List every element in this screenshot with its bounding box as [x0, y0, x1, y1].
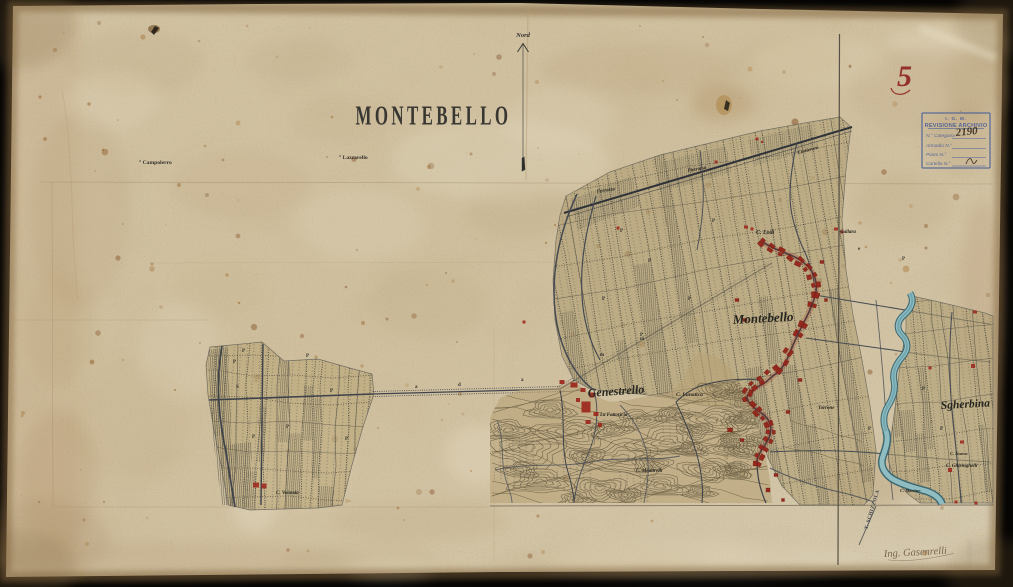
- svg-text:° Campolerro: ° Campolerro: [139, 159, 172, 166]
- svg-text:MONTEBELLO: MONTEBELLO: [356, 100, 512, 130]
- svg-text:C. Lunatica: C. Lunatica: [676, 392, 703, 398]
- svg-text:P: P: [602, 297, 605, 302]
- svg-text:P: P: [252, 435, 255, 440]
- svg-text:I. G. M.: I. G. M.: [945, 116, 966, 121]
- svg-text:Piano N.°: Piano N.°: [926, 152, 946, 158]
- svg-text:Armadio N.°: Armadio N.°: [925, 143, 952, 149]
- svg-text:C. Nuova: C. Nuova: [950, 451, 968, 456]
- svg-text:d: d: [458, 383, 461, 388]
- svg-text:C. Lodi: C. Lodi: [756, 230, 775, 236]
- svg-text:La Fattoricia: La Fattoricia: [599, 413, 628, 418]
- svg-text:C. Ghiringhelli: C. Ghiringhelli: [946, 464, 978, 469]
- svg-text:P: P: [620, 229, 623, 234]
- svg-text:Nord: Nord: [515, 32, 530, 39]
- svg-text:P: P: [242, 349, 245, 354]
- svg-text:P: P: [345, 437, 348, 442]
- svg-text:P: P: [233, 360, 236, 365]
- svg-text:P: P: [940, 427, 943, 432]
- svg-text:P: P: [868, 427, 871, 432]
- svg-text:Torrone: Torrone: [818, 406, 835, 411]
- svg-text:P: P: [648, 259, 651, 264]
- svg-text:N.° Categoria: N.° Categoria: [926, 133, 955, 139]
- svg-text:5: 5: [897, 60, 912, 93]
- svg-text:P: P: [712, 219, 715, 224]
- svg-text:C. Volanda: C. Volanda: [276, 491, 299, 496]
- svg-text:C. Martino: C. Martino: [900, 488, 921, 493]
- svg-text:P: P: [688, 297, 691, 302]
- svg-text:C. Mentirelli: C. Mentirelli: [636, 469, 663, 474]
- svg-text:P: P: [306, 354, 309, 359]
- svg-text:S: S: [236, 385, 239, 390]
- svg-text:P: P: [902, 257, 905, 262]
- svg-text:° Lazzarello: ° Lazzarello: [339, 154, 368, 161]
- svg-text:P: P: [330, 389, 333, 394]
- svg-text:Gallara: Gallara: [840, 230, 856, 235]
- svg-text:Cartella N.°: Cartella N.°: [926, 161, 951, 167]
- svg-text:P: P: [922, 387, 925, 392]
- svg-text:P: P: [286, 425, 289, 430]
- svg-text:2190: 2190: [954, 125, 978, 139]
